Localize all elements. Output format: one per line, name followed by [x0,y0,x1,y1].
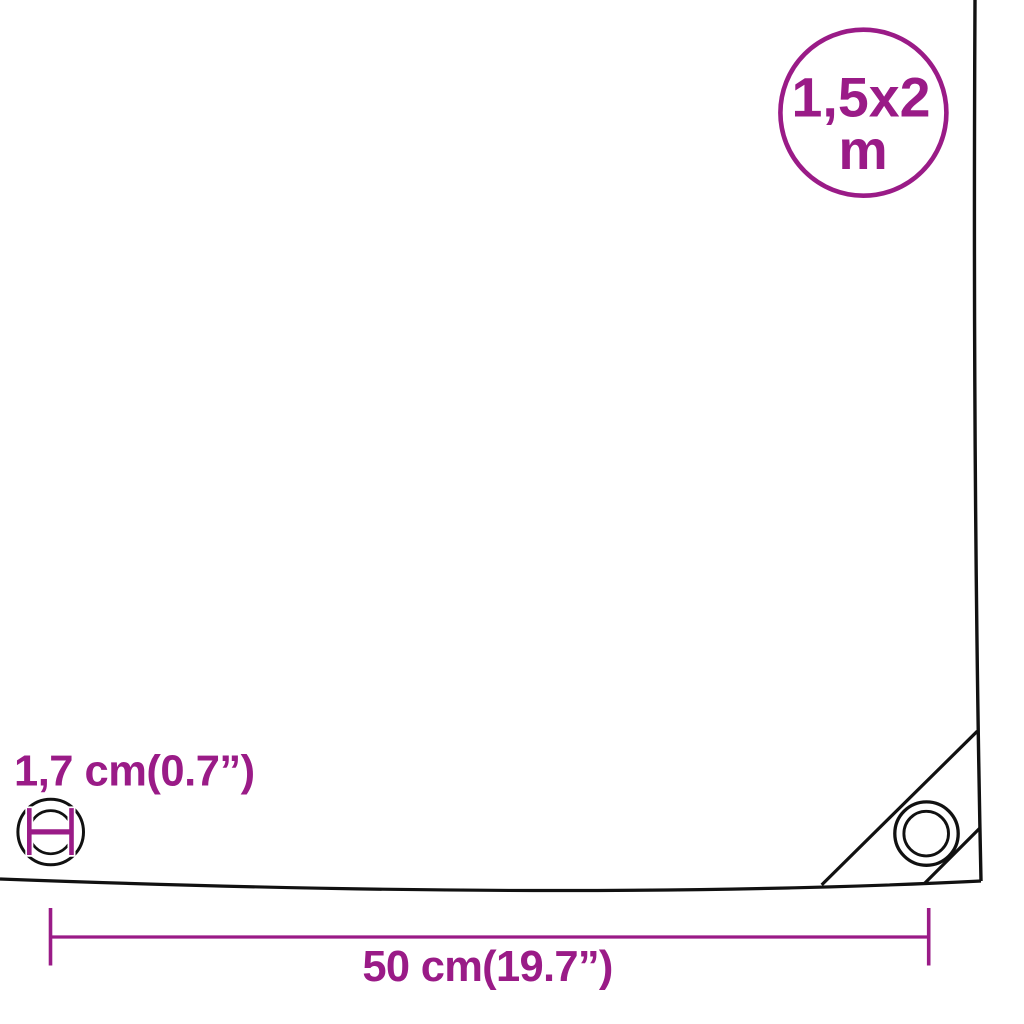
svg-text:1,7 cm(0.7”): 1,7 cm(0.7”) [14,748,255,796]
svg-text:50 cm(19.7”): 50 cm(19.7”) [362,943,612,991]
svg-text:m: m [838,119,887,181]
